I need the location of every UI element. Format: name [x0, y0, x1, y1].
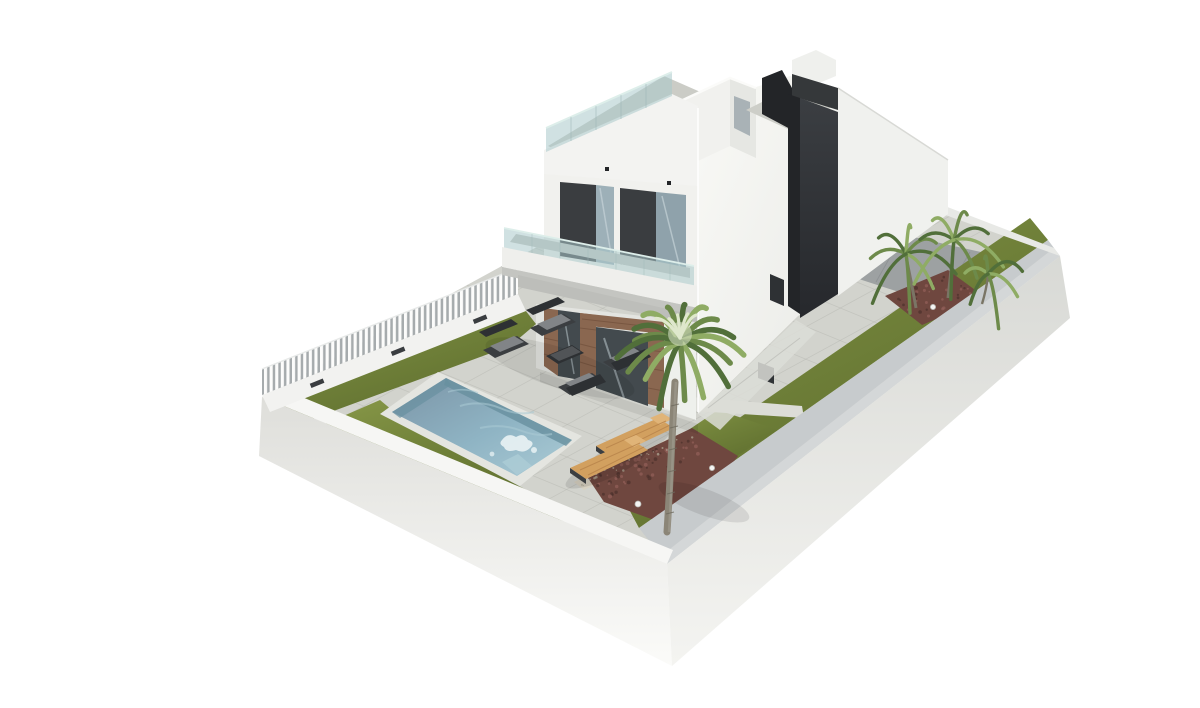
stair-tower-edge [788, 94, 800, 314]
render-image [40, 16, 1200, 692]
stair-tower [800, 98, 838, 318]
